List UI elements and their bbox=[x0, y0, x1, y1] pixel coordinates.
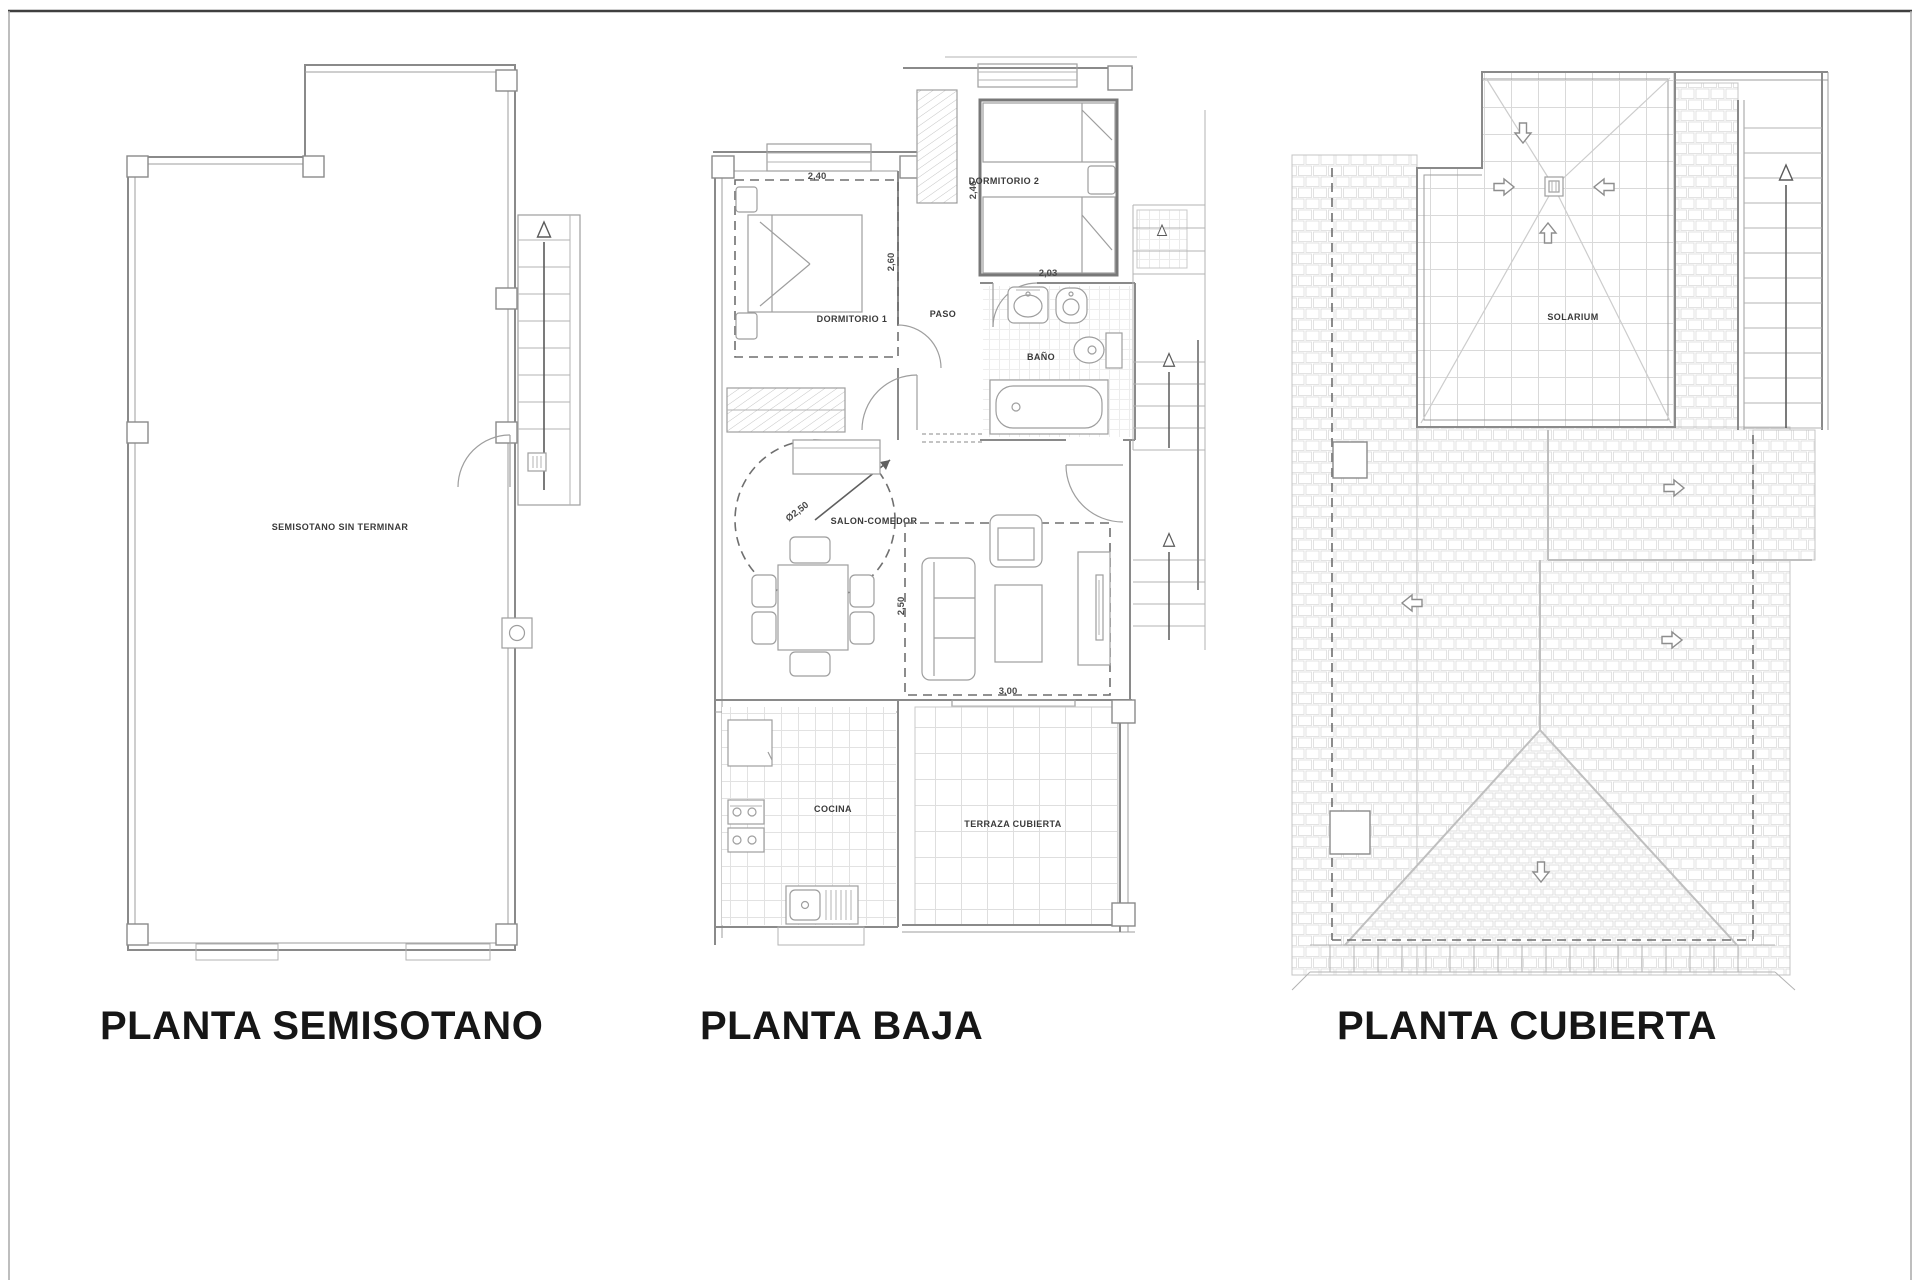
single-bed bbox=[983, 103, 1115, 162]
room-label-bano: BAÑO bbox=[1027, 352, 1055, 362]
room-salon: Ø2,50 SALON-COMEDOR bbox=[735, 434, 1135, 700]
bidet bbox=[1056, 288, 1087, 323]
solarium: SOLARIUM bbox=[1417, 72, 1675, 427]
door-dormitorio1 bbox=[898, 325, 941, 368]
entry-landing bbox=[1137, 210, 1187, 268]
drain-grate-icon bbox=[528, 453, 546, 471]
roof-vent bbox=[1330, 811, 1370, 854]
dimension-dorm2-height: 2,46 bbox=[968, 181, 979, 200]
room-label-terraza: TERRAZA CUBIERTA bbox=[964, 819, 1061, 829]
plan-title-baja: PLANTA BAJA bbox=[700, 1004, 983, 1049]
room-label-solarium: SOLARIUM bbox=[1547, 312, 1598, 322]
boiler bbox=[502, 618, 532, 648]
plan-cubierta: SOLARIUM bbox=[1292, 72, 1828, 990]
wardrobe bbox=[917, 90, 957, 203]
dimension-dorm2-width: 2,03 bbox=[1039, 268, 1058, 279]
fridge bbox=[728, 720, 772, 766]
plan-semisotano: SEMISOTANO SIN TERMINAR bbox=[127, 65, 580, 960]
coffee-table bbox=[995, 585, 1042, 662]
basement-exterior-stairs bbox=[518, 215, 580, 505]
plans-drawing: SEMISOTANO SIN TERMINAR DORMITORIO 1 2,4… bbox=[0, 0, 1920, 1280]
plan-title-cubierta: PLANTA CUBIERTA bbox=[1337, 1004, 1717, 1049]
room-label-dormitorio2: DORMITORIO 2 bbox=[969, 176, 1040, 186]
window-dorm2 bbox=[903, 64, 1133, 87]
door-salon bbox=[862, 375, 917, 430]
double-bed bbox=[748, 215, 862, 312]
bathtub bbox=[990, 380, 1108, 434]
room-label-semisotano: SEMISOTANO SIN TERMINAR bbox=[272, 522, 409, 532]
plan-title-semisotano: PLANTA SEMISOTANO bbox=[100, 1004, 543, 1049]
door-terraza-side bbox=[1066, 465, 1123, 522]
up-arrow-icon bbox=[1780, 165, 1793, 180]
kitchen-sink bbox=[786, 886, 858, 924]
dimension-dorm1-width: 2,40 bbox=[808, 171, 827, 182]
room-terraza: TERRAZA CUBIERTA bbox=[902, 700, 1135, 932]
baja-exterior-stairs bbox=[1133, 110, 1205, 650]
room-dormitorio1: DORMITORIO 1 2,40 2,60 bbox=[735, 171, 898, 357]
room-bano: BAÑO bbox=[980, 283, 1135, 440]
closet-dorm1 bbox=[727, 388, 845, 432]
plan-baja: DORMITORIO 1 2,40 2,60 bbox=[712, 57, 1205, 945]
up-arrow-icon bbox=[538, 222, 551, 237]
drain-icon bbox=[1545, 177, 1563, 196]
window-dorm1 bbox=[767, 144, 871, 171]
room-label-cocina: COCINA bbox=[814, 804, 852, 814]
dimension-salon-w: 3,00 bbox=[999, 686, 1018, 697]
up-arrow-icon bbox=[1163, 534, 1174, 547]
structural-pillars bbox=[127, 70, 517, 945]
roof-vent bbox=[1333, 442, 1367, 478]
sink bbox=[1008, 287, 1048, 323]
room-label-dormitorio1: DORMITORIO 1 bbox=[817, 314, 888, 324]
dimension-dorm1-height: 2,60 bbox=[886, 253, 897, 272]
nightstand bbox=[1088, 166, 1115, 194]
sideboard bbox=[793, 440, 880, 474]
armchair bbox=[990, 515, 1042, 567]
basement-windows bbox=[196, 944, 490, 960]
drawing-sheet: SEMISOTANO SIN TERMINAR DORMITORIO 1 2,4… bbox=[0, 0, 1920, 1280]
room-label-paso: PASO bbox=[930, 309, 956, 319]
dining-table bbox=[752, 537, 874, 676]
tv-unit bbox=[1078, 552, 1110, 665]
nightstand bbox=[736, 187, 757, 212]
nightstand bbox=[736, 313, 757, 339]
single-bed bbox=[983, 197, 1115, 273]
sofa bbox=[922, 558, 975, 680]
kitchen-window bbox=[778, 927, 864, 945]
up-arrow-icon bbox=[1163, 354, 1174, 367]
dimension-circle: Ø2,50 bbox=[784, 500, 811, 525]
dimension-salon-h: 2,50 bbox=[896, 597, 907, 616]
room-cocina: COCINA bbox=[715, 700, 898, 945]
